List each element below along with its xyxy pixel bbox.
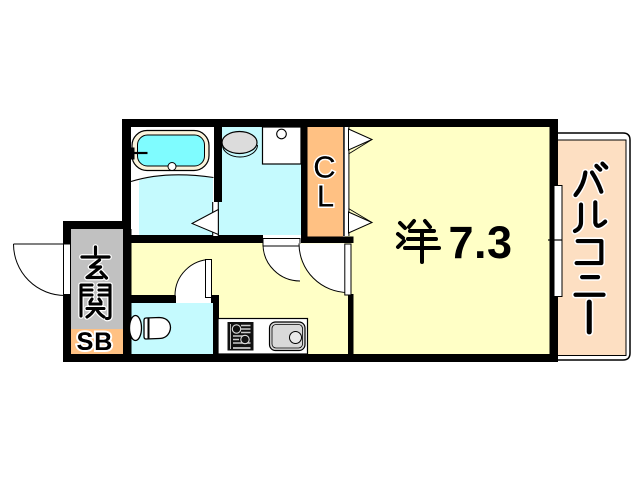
svg-text:SB: SB [77, 328, 114, 356]
svg-text:L: L [317, 179, 334, 214]
svg-text:7.3: 7.3 [449, 217, 513, 268]
